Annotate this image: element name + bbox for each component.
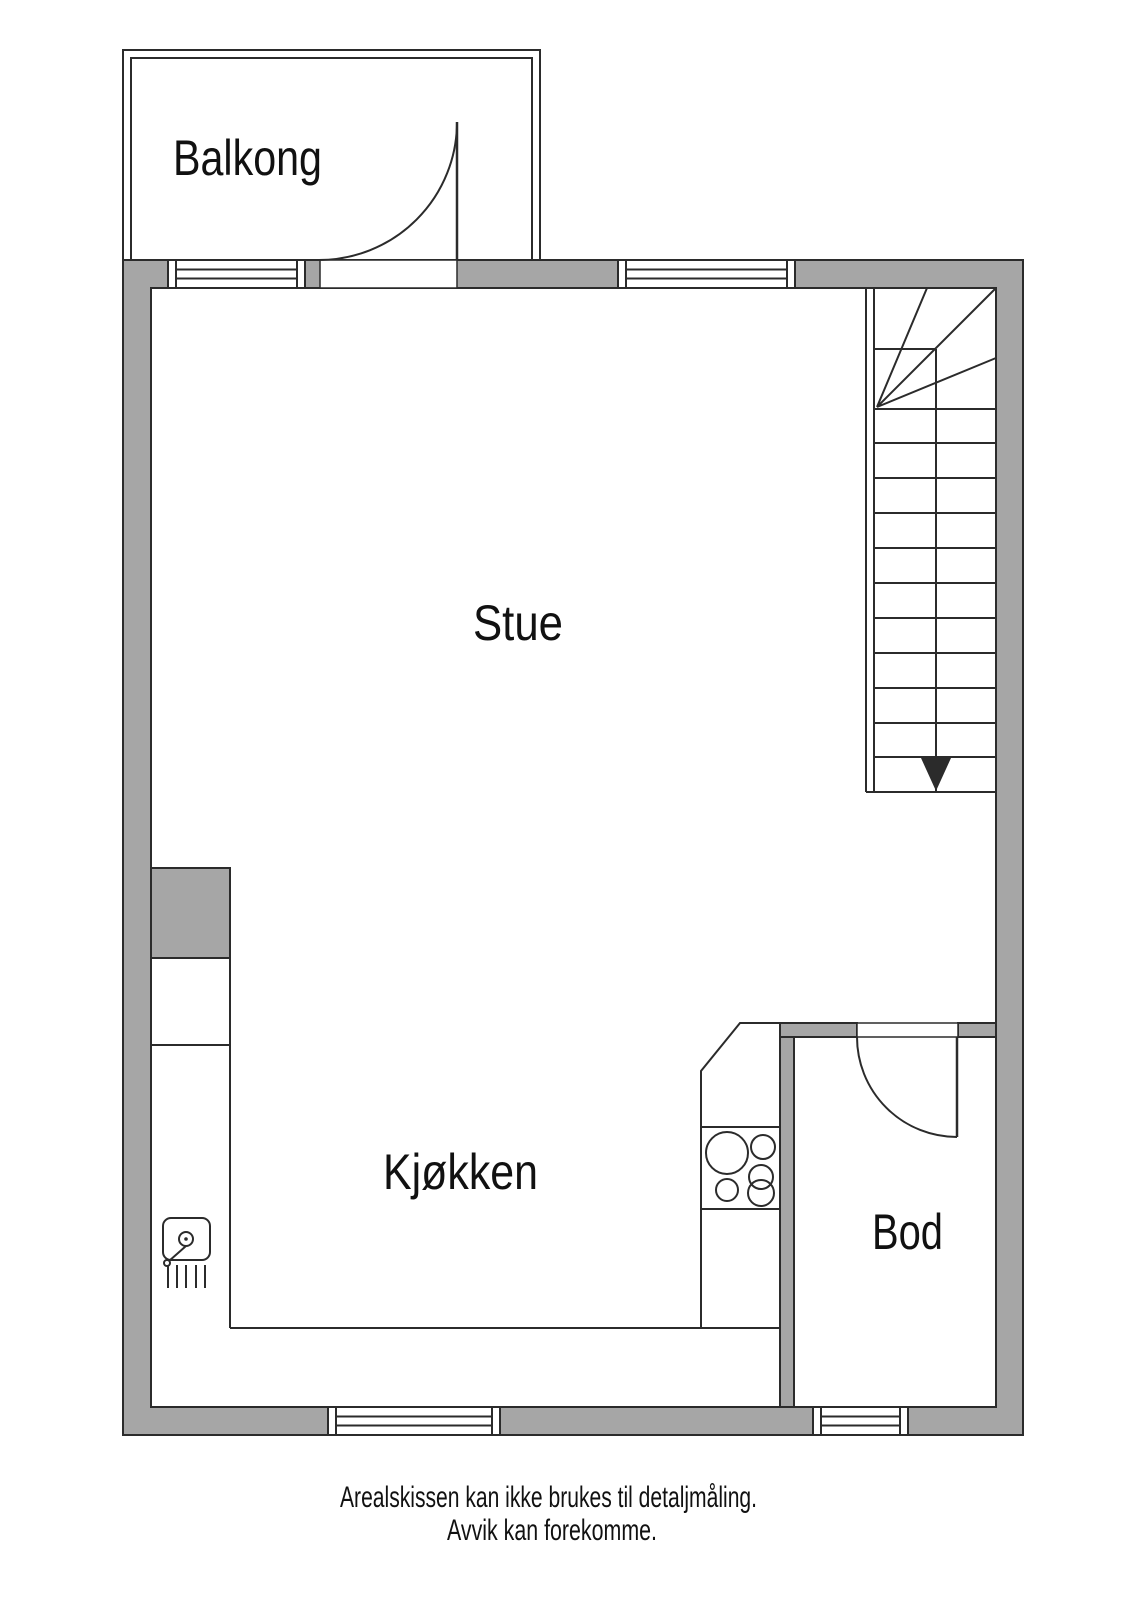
window-stue	[618, 260, 795, 288]
floor-plan-page: Balkong Stue Kjøkken Bod Arealskissen ka…	[0, 0, 1131, 1600]
room-label-balkong: Balkong	[173, 130, 322, 186]
bod-top-wall-left	[780, 1023, 857, 1037]
kitchen-bod-divider-wall	[780, 1023, 794, 1407]
canvas-background	[0, 0, 1131, 1600]
balcony-door-opening	[320, 260, 457, 288]
floor-plan-drawing: Balkong Stue Kjøkken Bod Arealskissen ka…	[0, 0, 1131, 1600]
room-label-stue: Stue	[473, 595, 563, 651]
window-bod	[813, 1407, 908, 1435]
bod-top-wall-right	[958, 1023, 996, 1037]
room-label-bod: Bod	[872, 1204, 943, 1260]
window-balcony	[168, 260, 305, 288]
disclaimer-line-1: Arealskissen kan ikke brukes til detaljm…	[340, 1481, 757, 1514]
disclaimer-line-2: Avvik kan forekomme.	[447, 1514, 657, 1547]
window-kitchen	[328, 1407, 500, 1435]
room-label-kjokken: Kjøkken	[383, 1144, 538, 1200]
wall-protrusion-left	[151, 868, 230, 958]
bod-door-opening	[857, 1023, 958, 1037]
